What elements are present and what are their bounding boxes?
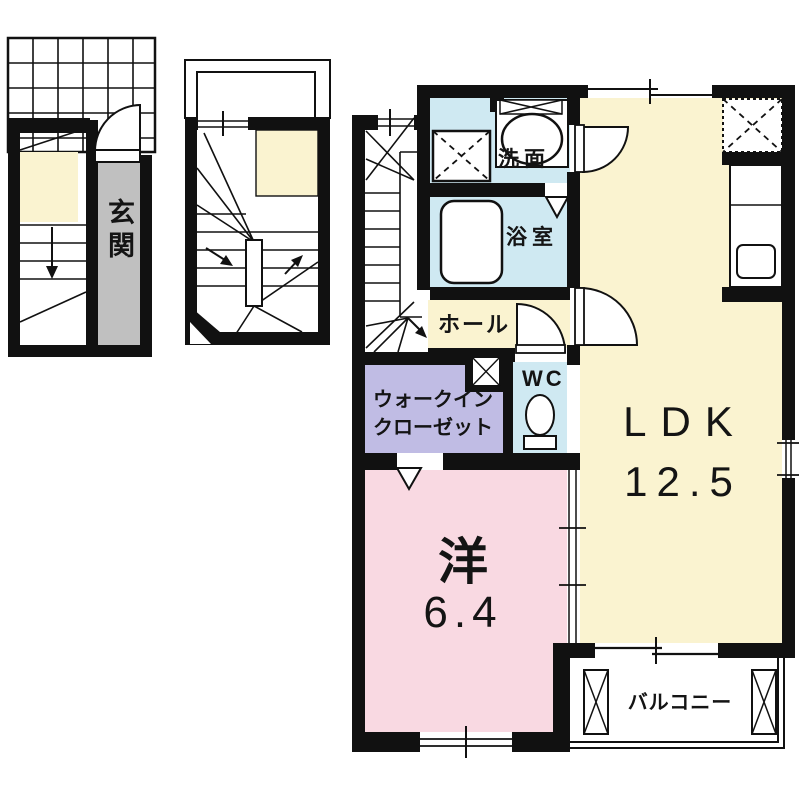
stair-landing-2f	[256, 130, 318, 196]
washer-pan-icon	[433, 131, 490, 181]
ldk-label: LDK	[598, 398, 772, 446]
kitchen-counter-icon	[730, 165, 782, 287]
balcony-pillar-left-icon	[584, 670, 608, 734]
ldk-area-label: 12.5	[590, 458, 776, 506]
floor-plan-canvas: 玄関 洗面 浴室 ホール WC ウォークイン クローゼット LDK 12.5 洋…	[0, 0, 800, 800]
stairs-down-arrow-icon	[46, 266, 58, 279]
walk-in-closet-label-line1: ウォークイン	[373, 389, 493, 411]
wc-label: WC	[522, 366, 565, 392]
kitchen-sink-icon	[737, 245, 775, 278]
pipe-space-icon	[472, 357, 500, 386]
stairs-arrow-down-icon	[220, 255, 233, 266]
western-room-area-label: 6.4	[398, 588, 528, 638]
second-floor-plan	[185, 60, 330, 345]
toilet-icon	[524, 395, 556, 449]
hall-label: ホール	[438, 307, 510, 339]
balcony-label: バルコニー	[610, 686, 750, 715]
stair-landing-1f	[20, 152, 78, 222]
walk-in-closet-label: ウォークイン クローゼット	[362, 386, 504, 442]
bathroom-label: 浴室	[506, 221, 558, 251]
walk-in-closet-label-line2: クローゼット	[373, 417, 493, 439]
canopy-outline	[185, 60, 330, 118]
window-stairs-icon	[378, 109, 414, 136]
entrance-label: 玄関	[100, 198, 139, 264]
bathtub-icon	[441, 201, 502, 283]
balcony-pillar-right-icon	[752, 670, 776, 734]
refrigerator-space-icon	[723, 99, 782, 152]
western-room-label: 洋	[410, 522, 516, 594]
washroom-label: 洗面	[498, 143, 550, 173]
